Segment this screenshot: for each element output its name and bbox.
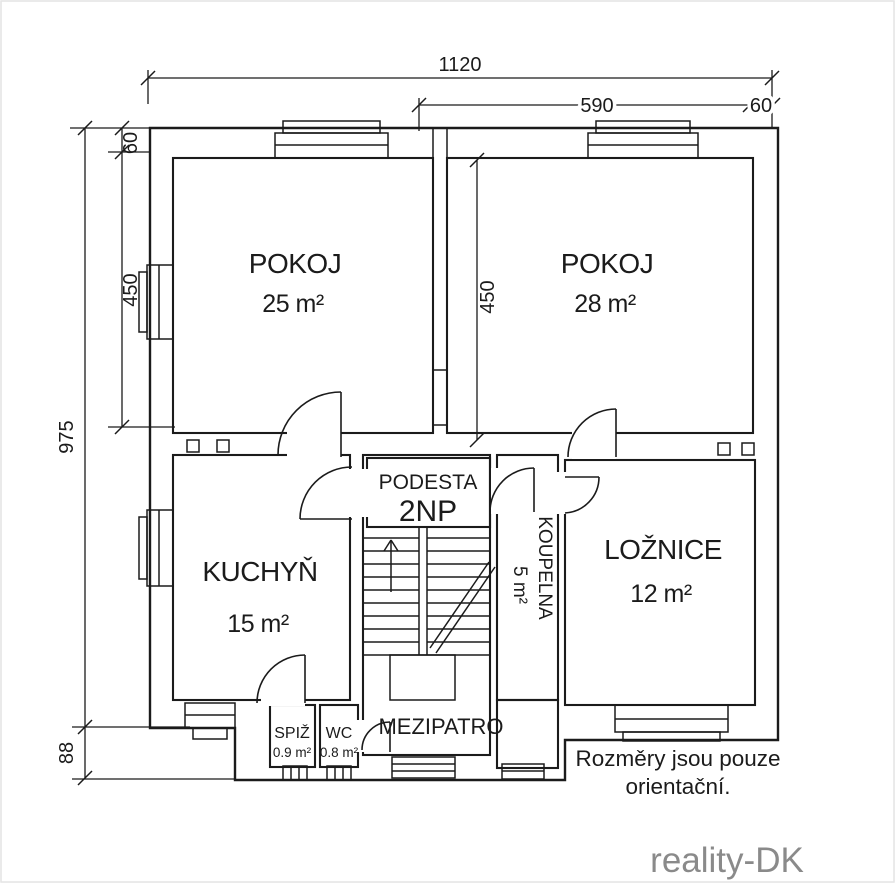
dim-top-room: 590 bbox=[580, 95, 613, 117]
note-block: Rozměry jsou pouze orientační. bbox=[575, 746, 780, 799]
stairs-direction-arrow-icon bbox=[384, 540, 398, 592]
window-bottom-hall bbox=[502, 764, 544, 779]
label-pokoj1-name: POKOJ bbox=[249, 248, 341, 279]
window-bottom-spiz bbox=[283, 766, 307, 780]
label-wc-area: 0.8 m² bbox=[320, 745, 359, 760]
stairs-break-line bbox=[430, 562, 495, 653]
label-koupelna-area: 5 m² bbox=[509, 566, 530, 604]
window-top-left bbox=[275, 121, 388, 158]
dimension-lines: 1120 590 60 975 88 60 450 450 bbox=[56, 54, 780, 785]
label-loznice-area: 12 m² bbox=[630, 580, 692, 608]
floorplan-drawing: 1120 590 60 975 88 60 450 450 bbox=[0, 0, 896, 884]
label-pokoj2-area: 28 m² bbox=[574, 290, 636, 318]
note-line1: Rozměry jsou pouze bbox=[575, 746, 780, 771]
note-line2: orientační. bbox=[625, 774, 730, 799]
floorplan-page: 1120 590 60 975 88 60 450 450 bbox=[0, 0, 896, 884]
door-loznice bbox=[565, 477, 599, 513]
vent-square bbox=[187, 440, 199, 452]
window-bottom-kitchen bbox=[185, 703, 235, 739]
window-left-upper bbox=[139, 265, 173, 339]
dim-left-bottom: 88 bbox=[56, 742, 78, 764]
label-podesta-name: PODESTA bbox=[379, 471, 478, 494]
room-labels: POKOJ 25 m² POKOJ 28 m² KUCHYŇ 15 m² LOŽ… bbox=[202, 248, 722, 760]
dim-left-wall-top: 60 bbox=[120, 132, 142, 154]
dim-left-total: 975 bbox=[56, 420, 78, 453]
stairs-lower-flight bbox=[390, 655, 455, 700]
vent-square bbox=[742, 443, 754, 455]
label-spiz-name: SPIŽ bbox=[274, 723, 310, 742]
vent-square bbox=[217, 440, 229, 452]
dim-top-total: 1120 bbox=[438, 54, 481, 76]
dim-interior-room: 450 bbox=[477, 280, 499, 313]
watermark: reality-DK bbox=[650, 841, 804, 880]
label-podesta-floor: 2NP bbox=[399, 495, 457, 528]
dim-top-wall: 60 bbox=[750, 95, 772, 117]
window-left-lower bbox=[139, 510, 173, 586]
label-loznice-name: LOŽNICE bbox=[604, 534, 722, 565]
vent-square bbox=[718, 443, 730, 455]
room-outlines bbox=[173, 128, 755, 768]
room-hall-lower bbox=[497, 700, 558, 768]
label-pokoj2-name: POKOJ bbox=[561, 248, 653, 279]
label-koupelna-name: KOUPELNA bbox=[534, 516, 555, 620]
window-bottom-loznice bbox=[615, 705, 728, 741]
window-top-right bbox=[588, 121, 698, 158]
label-spiz-area: 0.9 m² bbox=[273, 745, 312, 760]
label-kuchyn-area: 15 m² bbox=[227, 610, 289, 638]
label-pokoj1-area: 25 m² bbox=[262, 290, 324, 318]
label-kuchyn-name: KUCHYŇ bbox=[202, 556, 317, 587]
label-mezipatro-name: MEZIPATRO bbox=[378, 714, 503, 739]
window-bottom-mezipatro bbox=[392, 757, 455, 778]
label-wc-name: WC bbox=[326, 725, 353, 742]
window-bottom-wc bbox=[327, 766, 351, 780]
stairs bbox=[363, 527, 495, 700]
